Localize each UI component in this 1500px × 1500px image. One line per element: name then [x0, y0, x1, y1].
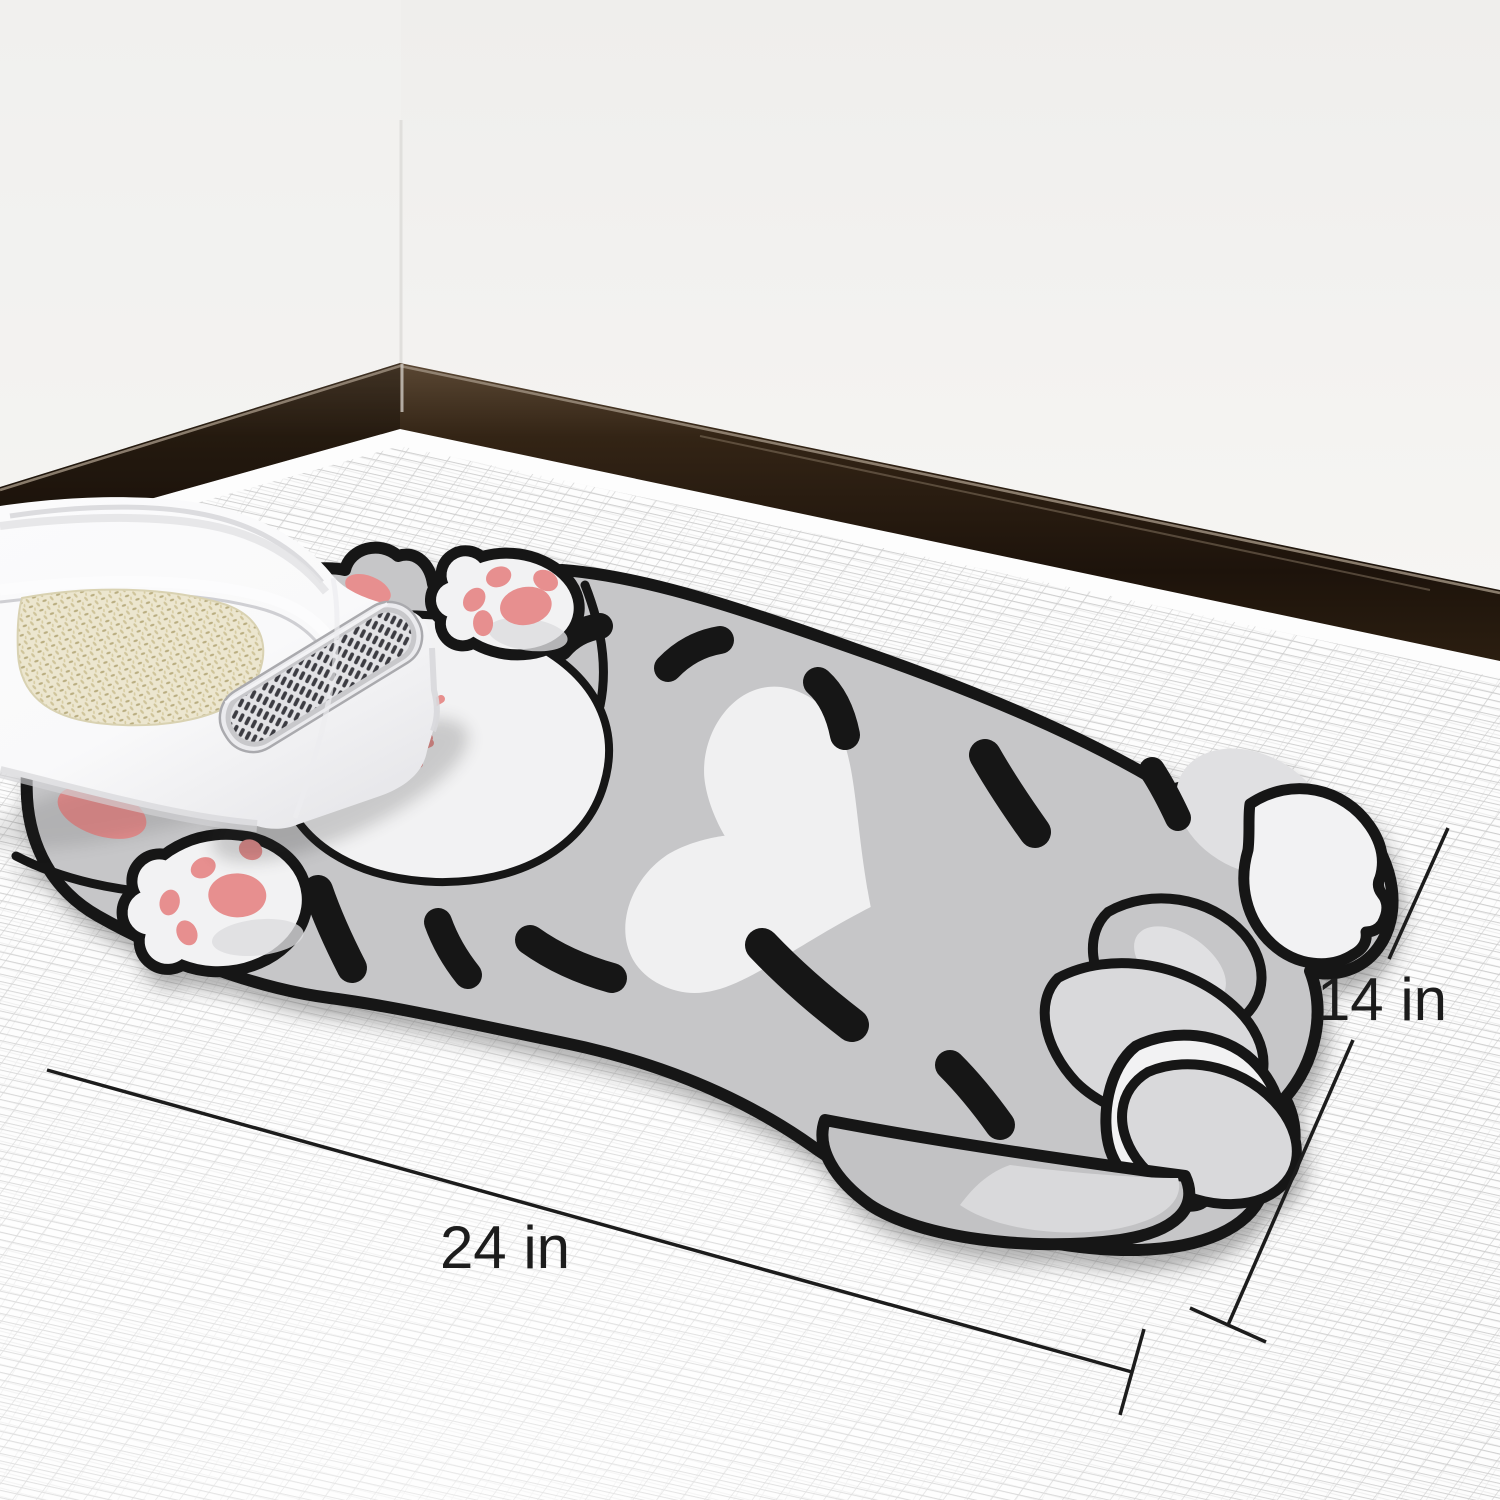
dimension-width-label: 24 in [440, 1214, 570, 1281]
dimension-height-label: 14 in [1317, 966, 1447, 1033]
cat-front-paw-top [430, 549, 579, 657]
product-photo-cat-litter-mat: 24 in 14 in [0, 0, 1500, 1500]
cat-fluff-hip [1244, 789, 1387, 964]
scene: 24 in 14 in [0, 0, 1500, 1500]
